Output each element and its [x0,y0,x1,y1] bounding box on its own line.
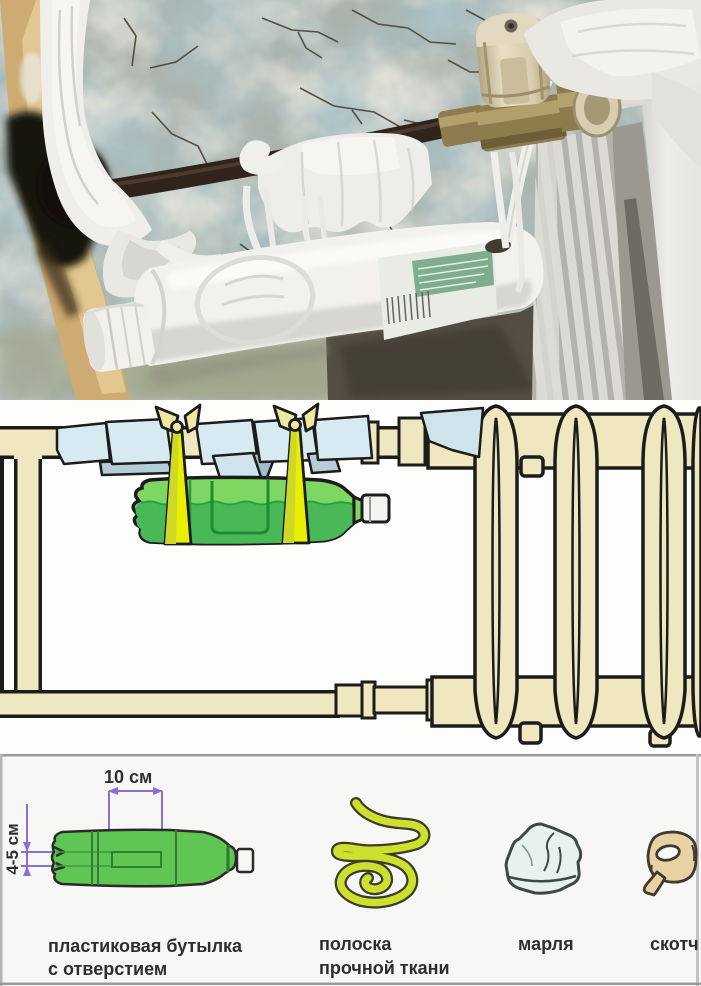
svg-text:с отверстием: с отверстием [48,959,167,979]
svg-text:марля: марля [518,934,574,954]
svg-text:пластиковая бутылка: пластиковая бутылка [48,936,243,956]
svg-text:скотч: скотч [650,934,699,954]
svg-text:4-5 см: 4-5 см [3,823,22,874]
svg-text:полоска: полоска [319,934,392,954]
svg-text:прочной ткани: прочной ткани [319,958,450,978]
svg-text:10 см: 10 см [104,767,152,787]
